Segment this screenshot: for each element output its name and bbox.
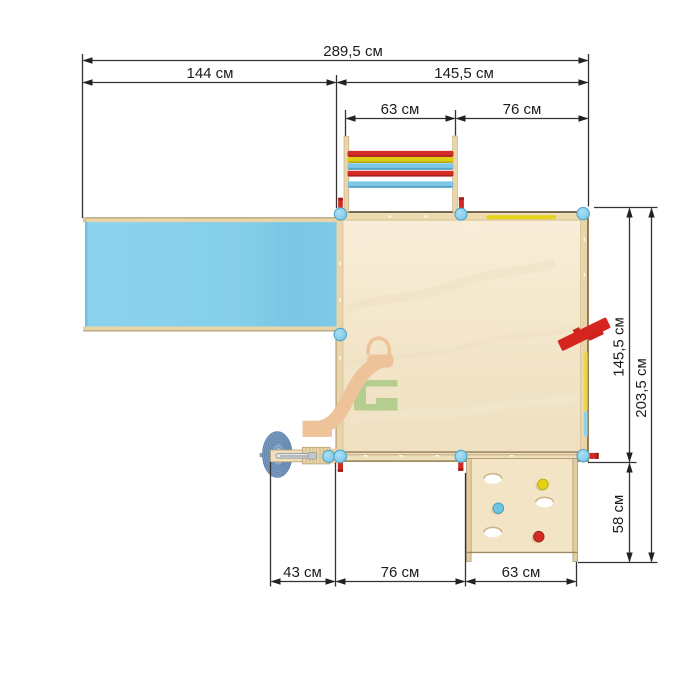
svg-text:63 см: 63 см bbox=[381, 101, 420, 118]
svg-text:63 см: 63 см bbox=[502, 564, 541, 581]
svg-text:76 см: 76 см bbox=[503, 101, 542, 118]
svg-text:43 см: 43 см bbox=[283, 564, 322, 581]
svg-text:58 см: 58 см bbox=[610, 495, 627, 534]
svg-text:145,5 см: 145,5 см bbox=[434, 65, 494, 82]
svg-text:144 см: 144 см bbox=[186, 65, 233, 82]
svg-text:145,5 см: 145,5 см bbox=[611, 317, 628, 377]
svg-text:76 см: 76 см bbox=[381, 564, 420, 581]
svg-text:289,5 см: 289,5 см bbox=[323, 43, 383, 60]
svg-text:203,5 см: 203,5 см bbox=[633, 358, 650, 418]
